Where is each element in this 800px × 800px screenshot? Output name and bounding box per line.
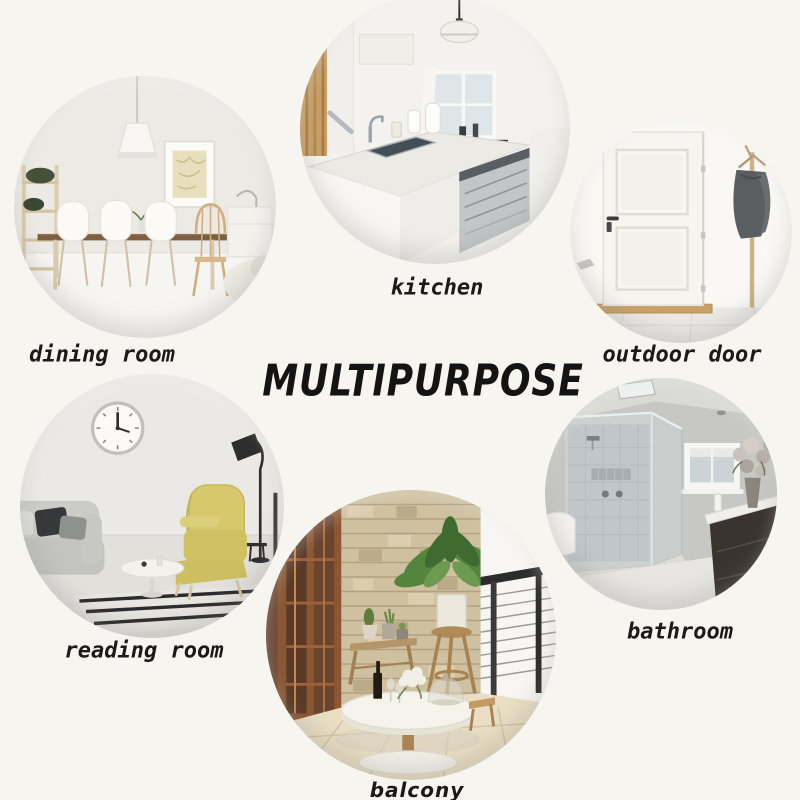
pendant-lamp (117, 76, 156, 157)
door-handle (607, 216, 619, 232)
potted-plant (392, 516, 508, 710)
kitchen-label: kitchen (391, 276, 484, 301)
reading-room-illustration (20, 374, 284, 638)
threshold (597, 304, 712, 313)
white-jug (426, 103, 441, 133)
vanity (705, 494, 777, 610)
outdoor-door-photo (570, 121, 792, 343)
yellow-armchair (176, 485, 247, 600)
small-black-table (247, 543, 267, 561)
tile-floor (266, 693, 556, 780)
bathroom-illustration (545, 378, 777, 610)
recessed-light (601, 427, 610, 432)
canister (392, 122, 401, 137)
wall-art (165, 142, 215, 208)
cable-railing (481, 490, 556, 705)
reading-room-label: reading room (65, 639, 224, 664)
door (603, 132, 705, 305)
shower-head (587, 436, 600, 441)
sofa (20, 501, 104, 575)
white-chairs (57, 200, 176, 286)
page-title: MULTIPURPOSE (262, 356, 583, 407)
flower-vase (733, 437, 777, 508)
window (432, 72, 494, 137)
stair-handrail (330, 113, 352, 132)
balcony-illustration (266, 490, 556, 780)
dining-room-photo (14, 76, 276, 338)
back-wall (354, 0, 570, 145)
glass-cloche (428, 679, 463, 702)
dining-room-illustration (14, 76, 276, 338)
console-desk (228, 191, 273, 257)
shower-curb (561, 554, 686, 582)
dining-table (38, 211, 231, 290)
pendant-lamp (440, 0, 478, 43)
stone-wall (341, 490, 483, 705)
wall-clock (93, 403, 143, 453)
side-table (120, 556, 183, 598)
shower-glass (564, 413, 682, 573)
sofa-corner (224, 254, 276, 306)
glass-door (278, 505, 342, 725)
flower-bouquet (399, 667, 426, 687)
reading-room-photo (20, 374, 284, 638)
curtain (420, 67, 436, 140)
balcony-photo (266, 490, 556, 780)
wooden-stool (469, 697, 495, 730)
gray-pillow (58, 515, 87, 540)
back-table (440, 124, 508, 167)
window (681, 443, 744, 494)
dark-pillow (34, 507, 69, 538)
product-collage: dining room kitchen outdoor door reading… (0, 0, 800, 800)
bathroom-label: bathroom (627, 620, 733, 645)
tile-niche (591, 468, 630, 480)
bathroom-photo (545, 378, 777, 610)
shower-interior (568, 424, 649, 561)
stair-wood-wall (300, 0, 354, 156)
dining-room-label: dining room (29, 343, 175, 368)
sink (368, 137, 436, 157)
balcony-label: balcony (370, 778, 465, 800)
round-table (336, 692, 481, 775)
kitchen-illustration (300, 0, 570, 264)
kitchen-island (308, 103, 529, 264)
coat-stand (733, 145, 770, 307)
outdoor-door-illustration (570, 121, 792, 343)
faucet (370, 117, 382, 143)
white-jug (408, 110, 420, 133)
bench-with-pots (350, 608, 417, 684)
soap-bottle (714, 494, 721, 511)
kitchen-photo (300, 0, 570, 264)
table-items (373, 661, 463, 706)
outdoor-door-label: outdoor door (603, 343, 762, 368)
recessed-light (717, 410, 726, 415)
windsor-chair (193, 204, 227, 296)
coat (733, 170, 769, 239)
ladder-shelf (22, 165, 59, 278)
